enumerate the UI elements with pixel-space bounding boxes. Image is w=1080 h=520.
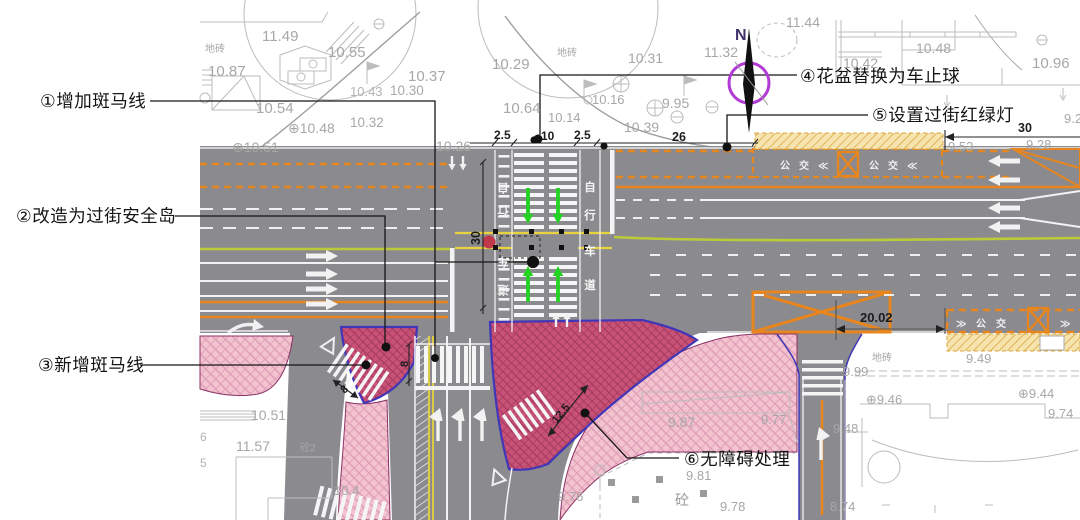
bus-lane-arrow: ≫ xyxy=(956,319,966,330)
dim-20-02: 20.02 xyxy=(860,310,893,325)
bus-lane-mark: 公 xyxy=(869,160,879,172)
south-leg-crosswalk xyxy=(416,346,484,383)
compass-north-label: N xyxy=(735,27,747,44)
elevation-label: 10.4 xyxy=(334,483,359,498)
bus-lane-mark: 交 xyxy=(888,159,898,172)
elevation-label: 6 xyxy=(200,430,207,444)
concrete-note: 砼 xyxy=(675,492,689,508)
elevation-label: 9.2 xyxy=(1064,111,1080,126)
elevation-label: 10.96 xyxy=(1032,55,1070,72)
elevation-label: 10.55 xyxy=(328,44,366,61)
elevation-label: 10.29 xyxy=(492,56,530,73)
ground-tile-note: 地砖 xyxy=(205,42,225,55)
elevation-label: 11.57 xyxy=(236,438,270,454)
bus-lane-mark: 交 xyxy=(996,317,1006,330)
elevation-label: 9.28 xyxy=(1026,137,1051,152)
elevation-label: 9.77 xyxy=(761,412,786,427)
dim-30-east: 30 xyxy=(1018,121,1032,135)
bus-lane-mark: 交 xyxy=(799,159,809,172)
dim-10: 10 xyxy=(541,129,555,143)
bike-lane-char-rev: 行 xyxy=(497,205,510,219)
dim-8-south: 8 xyxy=(399,361,411,367)
elevation-label: ⊕10.48 xyxy=(288,120,335,136)
elevation-label: ⊕9.46 xyxy=(866,392,902,407)
bike-lane-char: 自 xyxy=(584,180,596,194)
bus-lane-mark: 公 xyxy=(780,160,790,172)
elevation-label: 10.54 xyxy=(256,100,294,117)
elevation-label: 10.43 xyxy=(350,84,383,99)
elevation-label: 9.76 xyxy=(558,489,583,504)
elevation-label: 9.87 xyxy=(668,414,695,430)
bike-lane-char: 道 xyxy=(584,278,596,292)
bike-lane-char: 车 xyxy=(584,244,596,258)
elevation-label: 9.49 xyxy=(966,351,991,366)
dim-2-5-left: 2.5 xyxy=(494,128,511,142)
bike-lane-char-rev: 道 xyxy=(497,283,509,297)
elevation-label: 9.99 xyxy=(843,364,868,379)
north-compass: N xyxy=(729,27,769,133)
elevation-label: 8.74 xyxy=(830,499,855,514)
elevation-label: 10.51 xyxy=(251,407,286,423)
elevation-label: 11.49 xyxy=(262,28,298,45)
elevation-label: 9.81 xyxy=(686,468,711,483)
bike-lane-char-rev: 车 xyxy=(497,255,509,269)
elevation-label: 10.26 xyxy=(436,138,471,154)
dim-26: 26 xyxy=(672,130,686,144)
elevation-label: 10.87 xyxy=(208,63,246,80)
elevation-label: 5 xyxy=(200,456,207,470)
elevation-label: 10.14 xyxy=(548,110,581,125)
elevation-label: 10.48 xyxy=(916,40,951,56)
callout-safety-island: ②改造为过街安全岛 xyxy=(16,206,176,226)
elevation-label: 9.95 xyxy=(662,95,689,111)
bike-lane-char: 行 xyxy=(583,208,596,222)
dim-30-crossing: 30 xyxy=(469,231,483,245)
engineering-drawing-canvas: N ①增加斑马线 ②改造为过街安全岛 ③新增斑马线 ④花盆替换为车止球 ⑤设置过… xyxy=(0,0,1080,520)
callout-add-zebra: ①增加斑马线 xyxy=(40,91,146,111)
elevation-label: 10.30 xyxy=(390,83,424,98)
callout-new-zebra: ③新增斑马线 xyxy=(38,355,144,375)
ground-tile-note: 地砖 xyxy=(557,46,577,59)
ground-tile-note: 地砖 xyxy=(872,351,892,364)
elevation-label: 10.16 xyxy=(592,92,625,107)
bus-lane-arrow: ≫ xyxy=(1060,319,1070,330)
elevation-label: ⊕10.51 xyxy=(232,139,279,155)
dim-2-5-right: 2.5 xyxy=(574,128,591,142)
callout-bollards: ④花盆替换为车止球 xyxy=(800,66,960,86)
concrete-note-2: 砼2 xyxy=(300,441,316,454)
elevation-label: 10.39 xyxy=(624,119,659,135)
elevation-label: 10.42 xyxy=(843,55,878,71)
bus-lane-arrow: ≪ xyxy=(907,161,917,172)
elevation-label: 11.44 xyxy=(786,14,820,30)
elevation-label: 10.31 xyxy=(628,50,663,66)
elevation-label: 9.78 xyxy=(720,499,745,514)
elevation-label: 10.64 xyxy=(503,100,541,117)
elevation-label: ⊕9.44 xyxy=(1018,386,1054,401)
callout-barrier-free: ⑥无障碍处理 xyxy=(684,449,790,469)
bus-lane-mark: 公 xyxy=(976,318,986,330)
elevation-label: 11.32 xyxy=(704,44,738,60)
callout-signal: ⑤设置过街红绿灯 xyxy=(872,105,1014,125)
elevation-label: 9.53 xyxy=(948,139,973,154)
elevation-label: 9.74 xyxy=(1048,406,1073,421)
bus-lane-arrow: ≪ xyxy=(818,161,828,172)
elevation-label: 9.48 xyxy=(833,421,858,436)
intersection-plan-svg: N ①增加斑马线 ②改造为过街安全岛 ③新增斑马线 ④花盆替换为车止球 ⑤设置过… xyxy=(0,0,1080,520)
bike-lane-char-rev: 自 xyxy=(497,181,509,195)
elevation-label: 10.32 xyxy=(350,115,384,130)
